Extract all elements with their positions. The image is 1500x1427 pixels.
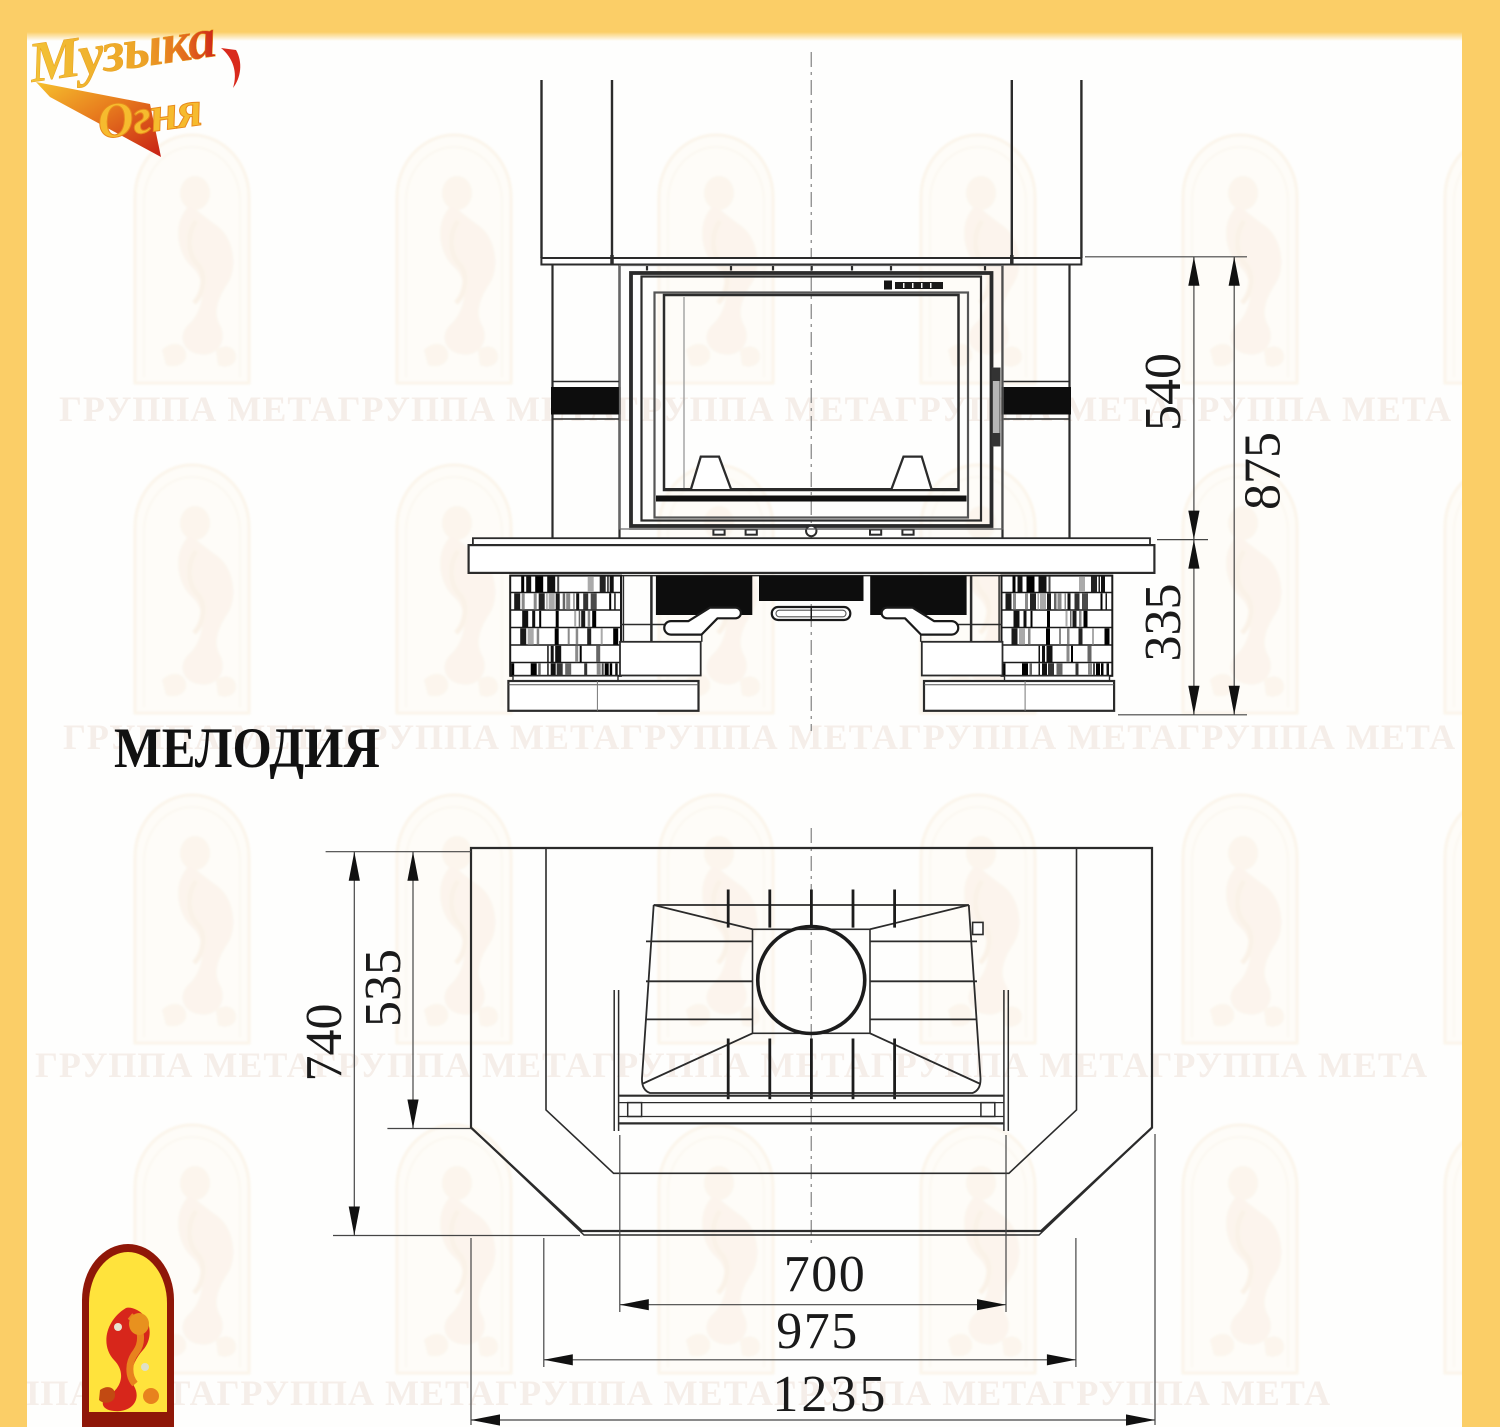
svg-text:335: 335 [1135, 584, 1192, 662]
svg-text:540: 540 [1135, 353, 1192, 431]
svg-text:975: 975 [776, 1303, 859, 1360]
svg-text:МЕЛОДИЯ: МЕЛОДИЯ [114, 717, 380, 780]
svg-text:740: 740 [296, 1004, 353, 1082]
svg-text:ГРУППА МЕТАГРУППА МЕТАГРУППА М: ГРУППА МЕТАГРУППА МЕТАГРУППА МЕТАГРУППА … [0, 1373, 1331, 1413]
svg-text:ГРУППА МЕТАГРУППА МЕТАГРУППА М: ГРУППА МЕТАГРУППА МЕТАГРУППА МЕТАГРУППА … [59, 389, 1452, 429]
svg-text:1235: 1235 [772, 1366, 888, 1423]
svg-text:535: 535 [355, 949, 412, 1027]
svg-text:ГРУППА МЕТАГРУППА МЕТАГРУППА М: ГРУППА МЕТАГРУППА МЕТАГРУППА МЕТАГРУППА … [35, 1045, 1428, 1085]
svg-text:700: 700 [784, 1246, 867, 1303]
svg-text:875: 875 [1234, 432, 1291, 510]
